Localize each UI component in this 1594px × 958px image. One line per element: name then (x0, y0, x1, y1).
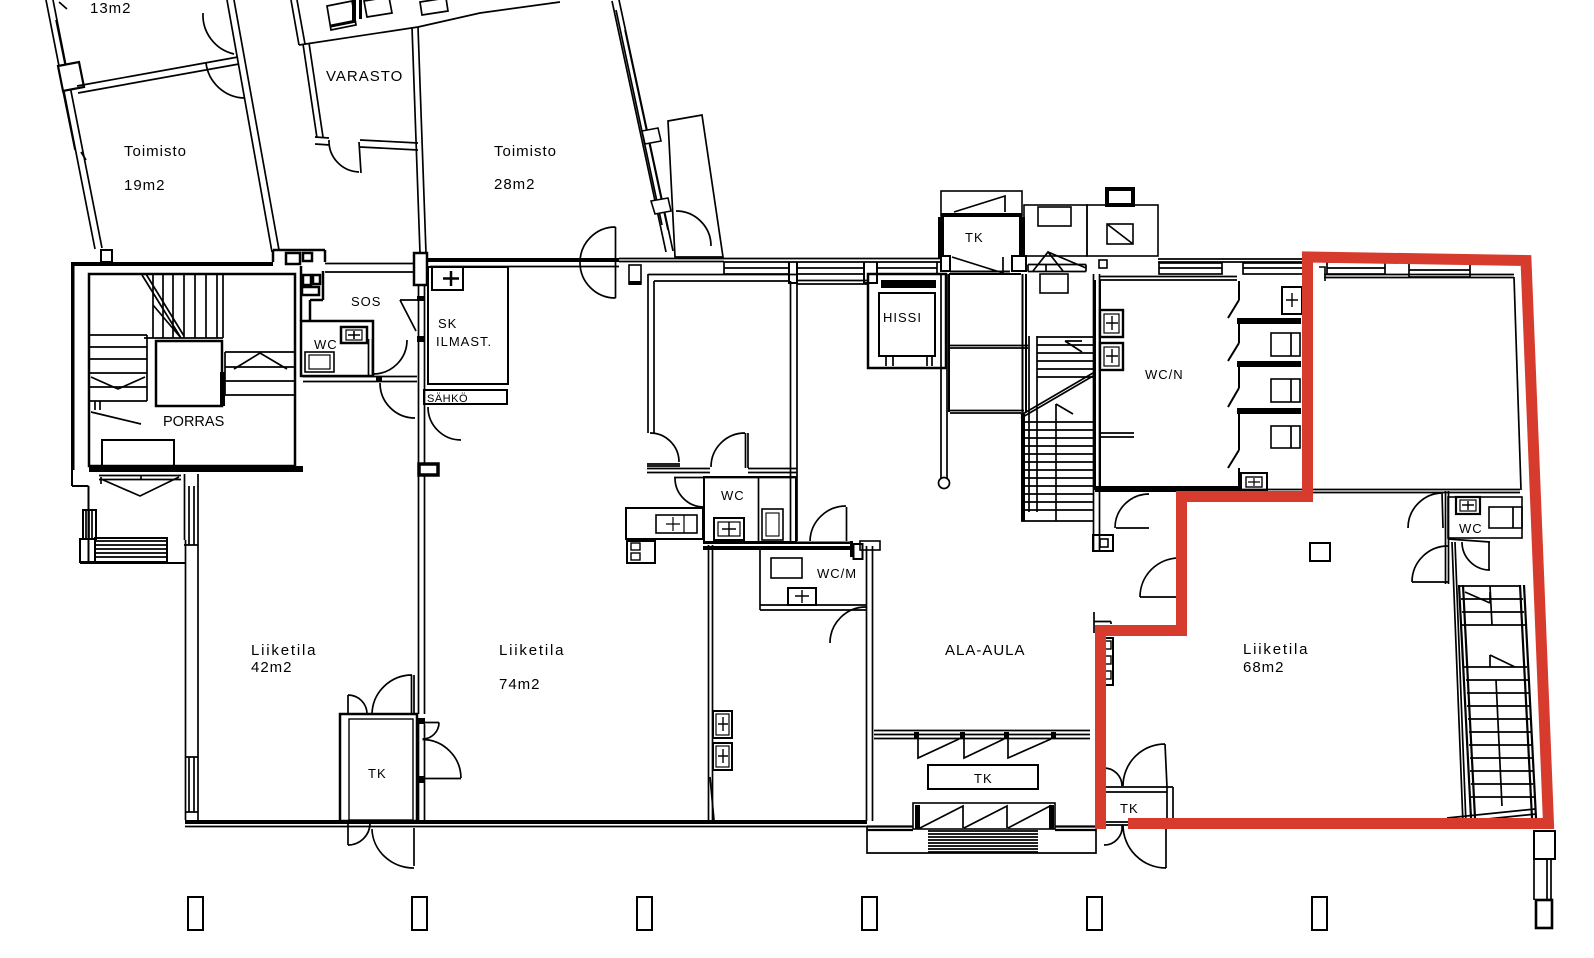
svg-text:SOS: SOS (351, 294, 381, 309)
svg-text:42m2: 42m2 (251, 659, 293, 676)
svg-text:SK: SK (438, 316, 457, 331)
svg-text:TK: TK (1120, 801, 1139, 816)
svg-text:WC: WC (721, 488, 745, 503)
svg-text:74m2: 74m2 (499, 676, 541, 693)
svg-text:TK: TK (368, 766, 387, 781)
svg-text:VARASTO: VARASTO (326, 68, 403, 85)
svg-text:SÄHKÖ: SÄHKÖ (427, 393, 468, 405)
svg-text:13m2: 13m2 (90, 0, 132, 17)
svg-text:Toimisto: Toimisto (124, 143, 187, 160)
svg-text:TK: TK (965, 230, 984, 245)
svg-text:19m2: 19m2 (124, 177, 166, 194)
svg-text:68m2: 68m2 (1243, 659, 1285, 676)
svg-text:WC/M: WC/M (817, 566, 857, 581)
svg-text:Liiketila: Liiketila (251, 642, 317, 659)
svg-text:HISSI: HISSI (883, 310, 922, 325)
svg-text:TK: TK (974, 771, 993, 786)
svg-text:Liiketila: Liiketila (1243, 641, 1309, 658)
svg-text:Liiketila: Liiketila (499, 642, 565, 659)
svg-text:ILMAST.: ILMAST. (436, 334, 492, 349)
svg-text:WC: WC (1459, 521, 1483, 536)
svg-text:Toimisto: Toimisto (494, 143, 557, 160)
svg-text:ALA-AULA: ALA-AULA (945, 642, 1026, 659)
svg-text:PORRAS: PORRAS (163, 414, 224, 430)
svg-text:28m2: 28m2 (494, 176, 536, 193)
svg-text:WC: WC (314, 337, 338, 352)
svg-text:WC/N: WC/N (1145, 367, 1184, 382)
